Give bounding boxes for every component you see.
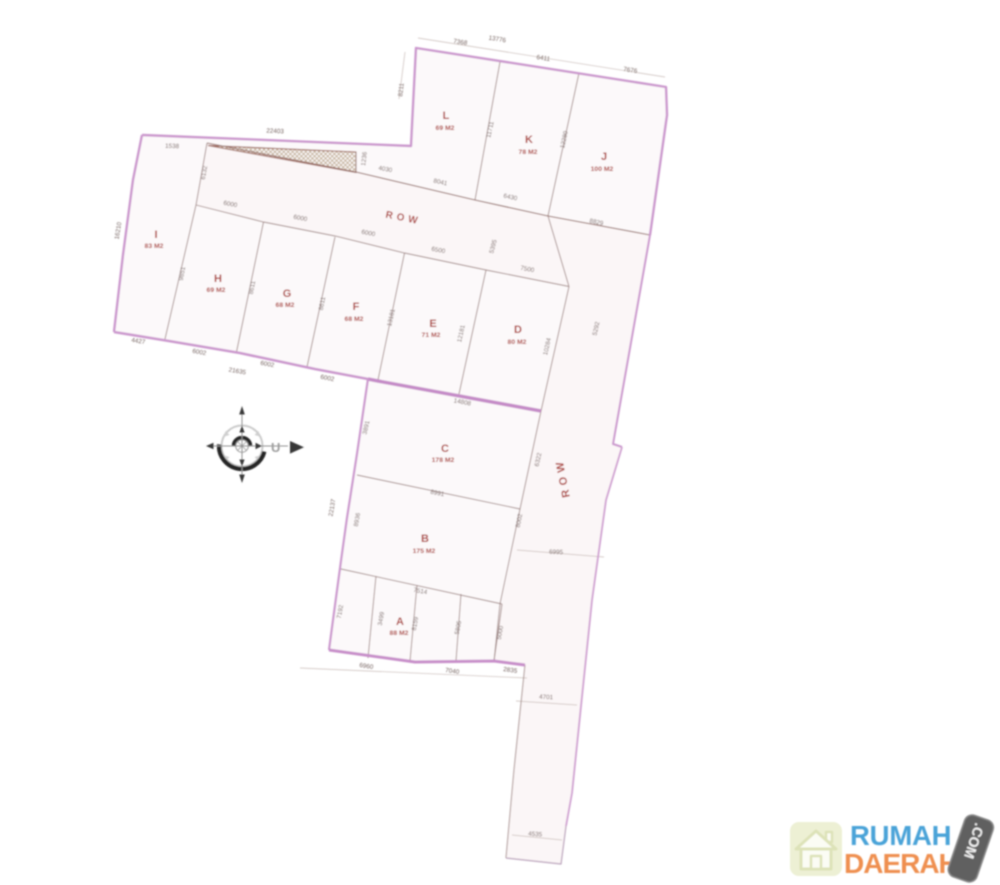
svg-text:1538: 1538 [165,143,180,151]
svg-text:F: F [353,301,360,313]
svg-text:83 M2: 83 M2 [145,243,164,250]
svg-text:DAERAH: DAERAH [844,848,958,879]
svg-text:D: D [514,324,522,336]
svg-text:178 M2: 178 M2 [432,457,455,464]
svg-text:69 M2: 69 M2 [436,125,455,132]
svg-text:E: E [429,318,436,330]
svg-text:80 M2: 80 M2 [508,339,527,346]
svg-text:71 M2: 71 M2 [422,332,441,339]
svg-text:88 M2: 88 M2 [390,630,409,637]
svg-text:8211: 8211 [397,82,405,97]
svg-text:4535: 4535 [528,831,543,839]
svg-text:68 M2: 68 M2 [276,302,295,309]
svg-text:68 M2: 68 M2 [345,316,364,323]
svg-text:A: A [396,616,404,628]
svg-text:C: C [441,443,449,455]
svg-text:22403: 22403 [266,128,284,136]
svg-text:B: B [421,533,429,545]
svg-text:175 M2: 175 M2 [413,548,436,555]
svg-text:69 M2: 69 M2 [207,287,226,294]
svg-text:78 M2: 78 M2 [519,149,538,156]
svg-text:H: H [214,273,222,285]
svg-text:K: K [525,134,533,146]
svg-text:U: U [271,440,280,455]
svg-text:I: I [154,229,157,241]
svg-text:6995: 6995 [549,549,564,557]
svg-text:100 M2: 100 M2 [591,166,614,173]
svg-text:G: G [283,288,292,300]
svg-text:RUMAH: RUMAH [850,820,951,851]
svg-text:4701: 4701 [539,694,554,702]
svg-text:J: J [601,151,607,163]
svg-text:L: L [443,110,450,122]
